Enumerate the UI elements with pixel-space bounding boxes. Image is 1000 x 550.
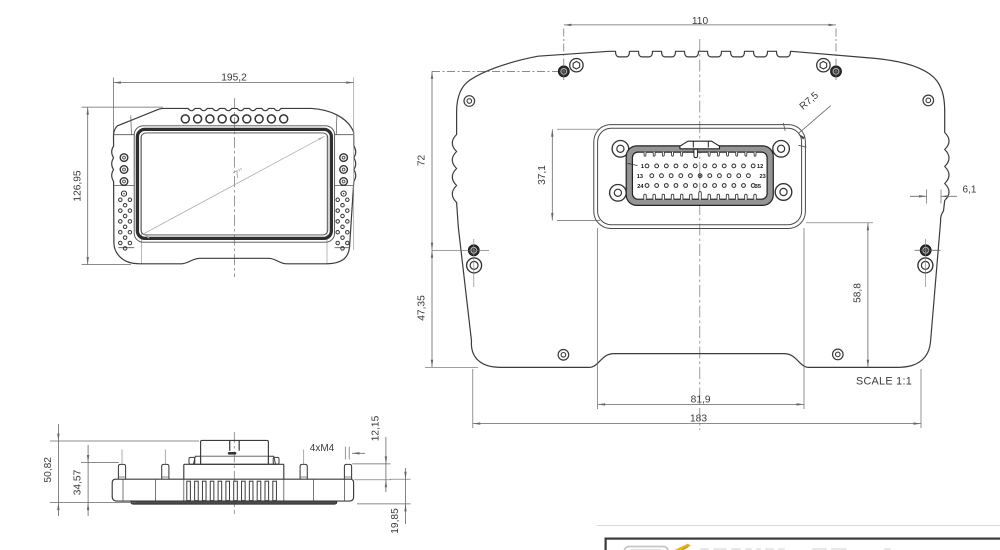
- svg-text:72: 72: [416, 155, 427, 167]
- svg-text:126,95: 126,95: [73, 170, 84, 201]
- svg-text:110: 110: [692, 16, 709, 27]
- svg-text:195,2: 195,2: [221, 72, 247, 83]
- svg-text:23: 23: [760, 174, 766, 180]
- svg-text:183: 183: [690, 413, 707, 424]
- svg-text:6,1: 6,1: [963, 184, 977, 195]
- svg-text:24: 24: [637, 184, 644, 190]
- svg-text:50,82: 50,82: [43, 457, 54, 483]
- svg-text:81,9: 81,9: [691, 394, 711, 405]
- svg-text:13: 13: [637, 174, 643, 180]
- svg-text:19,85: 19,85: [390, 508, 401, 534]
- svg-text:37,1: 37,1: [537, 165, 548, 185]
- svg-text:4xM4: 4xM4: [310, 443, 335, 454]
- svg-text:1: 1: [641, 164, 644, 170]
- svg-text:34,57: 34,57: [73, 469, 84, 495]
- svg-text:47,35: 47,35: [416, 295, 427, 321]
- svg-text:12: 12: [757, 164, 763, 170]
- svg-text:12,15: 12,15: [370, 415, 381, 441]
- svg-text:SCALE 1:1: SCALE 1:1: [856, 376, 912, 388]
- svg-text:35: 35: [755, 184, 761, 190]
- svg-text:58,8: 58,8: [852, 283, 863, 303]
